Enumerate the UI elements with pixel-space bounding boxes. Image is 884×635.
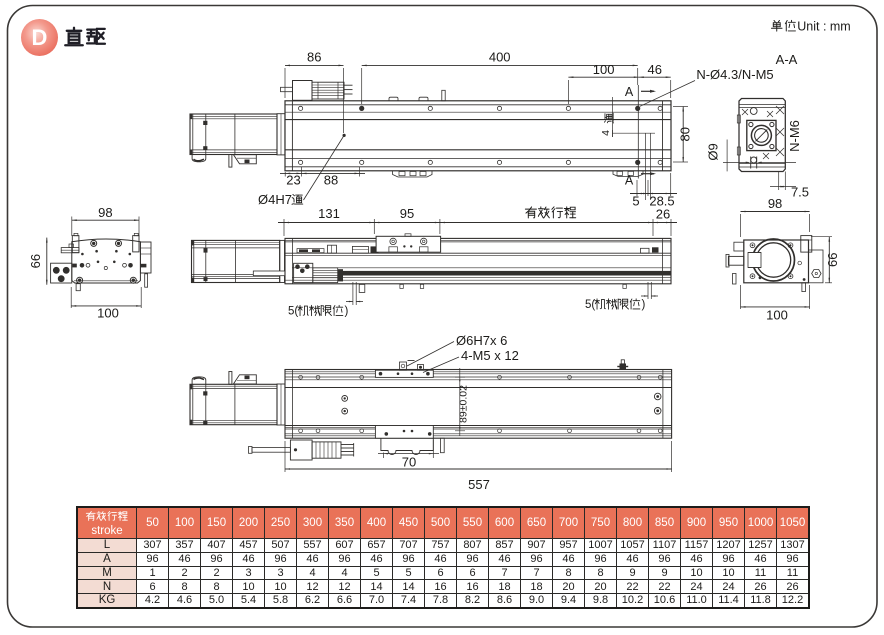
- svg-text:A-A: A-A: [776, 52, 798, 67]
- svg-text:131: 131: [318, 206, 340, 221]
- svg-text:): ): [642, 299, 646, 311]
- svg-text:Ø9: Ø9: [706, 143, 721, 160]
- svg-text:86: 86: [307, 50, 321, 65]
- svg-text:5(: 5(: [585, 299, 595, 311]
- svg-text:5: 5: [632, 194, 639, 209]
- svg-text:23: 23: [286, 173, 300, 188]
- svg-text:7.5: 7.5: [791, 185, 809, 200]
- svg-text:): ): [345, 306, 349, 318]
- svg-text:557: 557: [468, 477, 490, 492]
- svg-text:46: 46: [648, 62, 662, 77]
- svg-text:5(: 5(: [288, 306, 298, 318]
- svg-text:98: 98: [98, 205, 112, 220]
- svg-text:98: 98: [768, 196, 782, 211]
- svg-text:100: 100: [593, 62, 615, 77]
- svg-text:N-Ø4.3/N-M5: N-Ø4.3/N-M5: [696, 67, 773, 82]
- svg-text:95: 95: [400, 206, 414, 221]
- svg-text:66: 66: [28, 254, 43, 268]
- svg-text:Ø6H7x 6: Ø6H7x 6: [456, 333, 507, 348]
- svg-text:Unit : mm: Unit : mm: [797, 20, 850, 34]
- svg-text:100: 100: [766, 308, 788, 323]
- svg-text:80: 80: [678, 127, 693, 141]
- svg-text:400: 400: [489, 50, 511, 65]
- svg-text:88: 88: [324, 173, 338, 188]
- svg-text:70: 70: [402, 455, 416, 470]
- svg-text:N-M6: N-M6: [787, 120, 802, 152]
- svg-text:A: A: [625, 85, 634, 99]
- svg-text:89±0.02: 89±0.02: [458, 385, 470, 423]
- svg-text:66: 66: [825, 253, 840, 267]
- svg-text:Ø4H7: Ø4H7: [258, 192, 292, 207]
- svg-text:A: A: [625, 174, 634, 188]
- svg-text:D: D: [32, 25, 48, 50]
- svg-text:4: 4: [600, 130, 612, 136]
- svg-text:100: 100: [97, 306, 119, 321]
- svg-text:26: 26: [656, 207, 670, 222]
- svg-text:4-M5 x 12: 4-M5 x 12: [461, 348, 519, 363]
